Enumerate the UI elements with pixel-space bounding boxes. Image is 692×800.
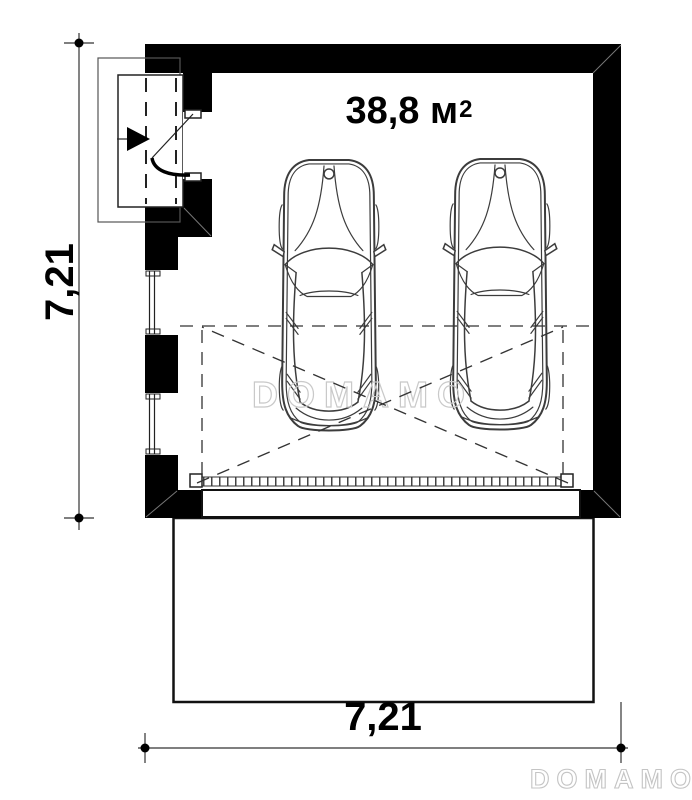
- garage-door-track: [190, 474, 573, 487]
- floor-plan-page: DOMAMO DOMAMO 38,8 м2 7,21 7,21: [0, 0, 692, 800]
- watermark-center: DOMAMO: [252, 374, 474, 415]
- driveway: [174, 518, 594, 702]
- garage-opening-threshold: [202, 490, 580, 517]
- area-superscript: 2: [459, 96, 472, 123]
- left-wall-seg2: [145, 335, 178, 393]
- bottom-wall-right: [580, 490, 621, 518]
- dimension-left-label: 7,21: [28, 234, 92, 330]
- window-1: [145, 270, 178, 335]
- window-2: [145, 393, 178, 455]
- door-pilaster-upper: [183, 73, 212, 112]
- dimension-bottom-label: 7,21: [283, 696, 483, 738]
- garage-door-jamb-left: [190, 474, 202, 487]
- area-label: 38,8 м2: [304, 90, 514, 131]
- left-wall-seg3: [145, 455, 178, 490]
- left-wall-seg1: [145, 237, 178, 270]
- wall-opening: [183, 112, 212, 179]
- area-unit: м: [430, 90, 458, 132]
- top-wall: [145, 44, 621, 73]
- area-value: 38,8: [345, 90, 419, 132]
- watermark-corner: DOMAMO: [530, 764, 692, 794]
- right-wall: [593, 44, 621, 518]
